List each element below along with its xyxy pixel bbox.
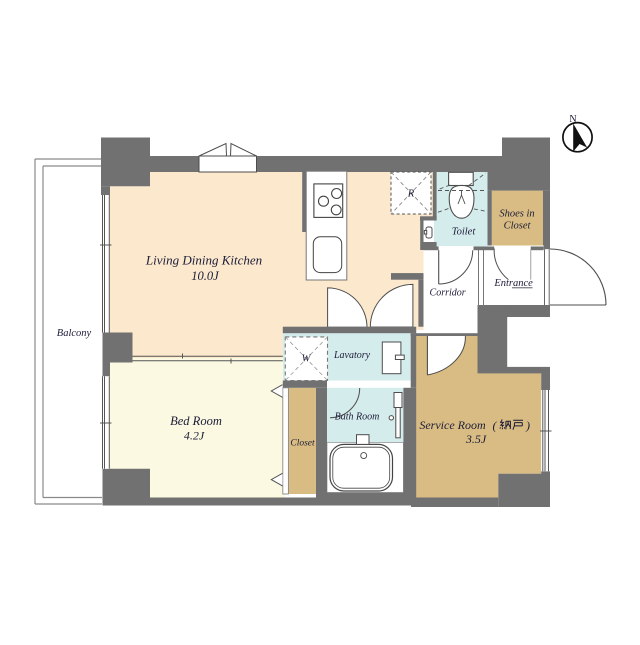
svg-text:Closet: Closet (290, 439, 315, 449)
svg-text:Living Dining Kitchen: Living Dining Kitchen (145, 253, 262, 268)
svg-text:W: W (302, 354, 312, 365)
svg-text:Service Room: Service Room (419, 418, 486, 432)
svg-text:Balcony: Balcony (57, 328, 92, 339)
svg-text:Shoes in: Shoes in (499, 209, 534, 220)
svg-text:Bed Room: Bed Room (170, 414, 222, 428)
svg-text:3.5J: 3.5J (465, 432, 487, 446)
svg-text:Bath Room: Bath Room (335, 412, 380, 423)
svg-text:10.0J: 10.0J (191, 269, 220, 283)
svg-text:Corridor: Corridor (430, 288, 466, 299)
svg-text:): ) (525, 419, 530, 433)
svg-text:Closet: Closet (504, 221, 532, 232)
svg-text:Toilet: Toilet (452, 227, 477, 238)
svg-text:R: R (407, 189, 415, 200)
svg-text:N: N (569, 114, 576, 125)
svg-text:4.2J: 4.2J (184, 429, 205, 443)
svg-text:Lavatory: Lavatory (333, 350, 371, 361)
